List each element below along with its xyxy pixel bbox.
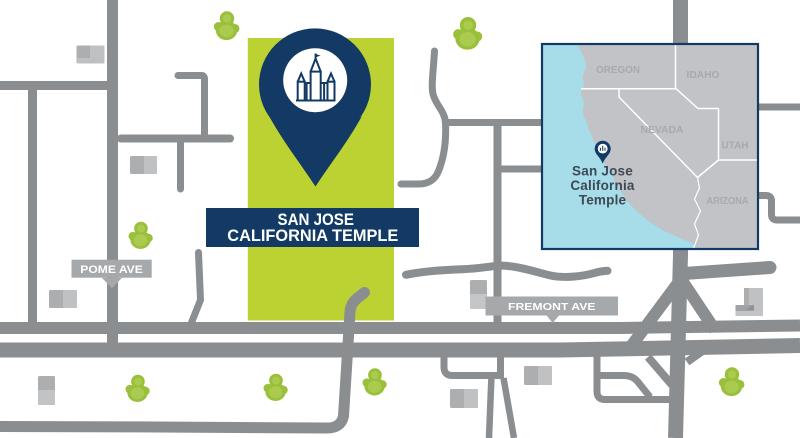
svg-text:OREGON: OREGON	[596, 64, 640, 76]
svg-text:ARIZONA: ARIZONA	[707, 195, 749, 207]
svg-text:FREMONT AVE: FREMONT AVE	[508, 301, 596, 313]
svg-text:IDAHO: IDAHO	[687, 69, 720, 81]
svg-text:UTAH: UTAH	[722, 140, 749, 152]
svg-text:NEVADA: NEVADA	[641, 124, 684, 136]
svg-text:POME AVE: POME AVE	[80, 264, 143, 276]
svg-text:CALIFORNIA TEMPLE: CALIFORNIA TEMPLE	[227, 226, 398, 245]
svg-text:California: California	[570, 178, 635, 193]
svg-text:Temple: Temple	[579, 193, 627, 208]
svg-text:San Jose: San Jose	[572, 164, 633, 179]
